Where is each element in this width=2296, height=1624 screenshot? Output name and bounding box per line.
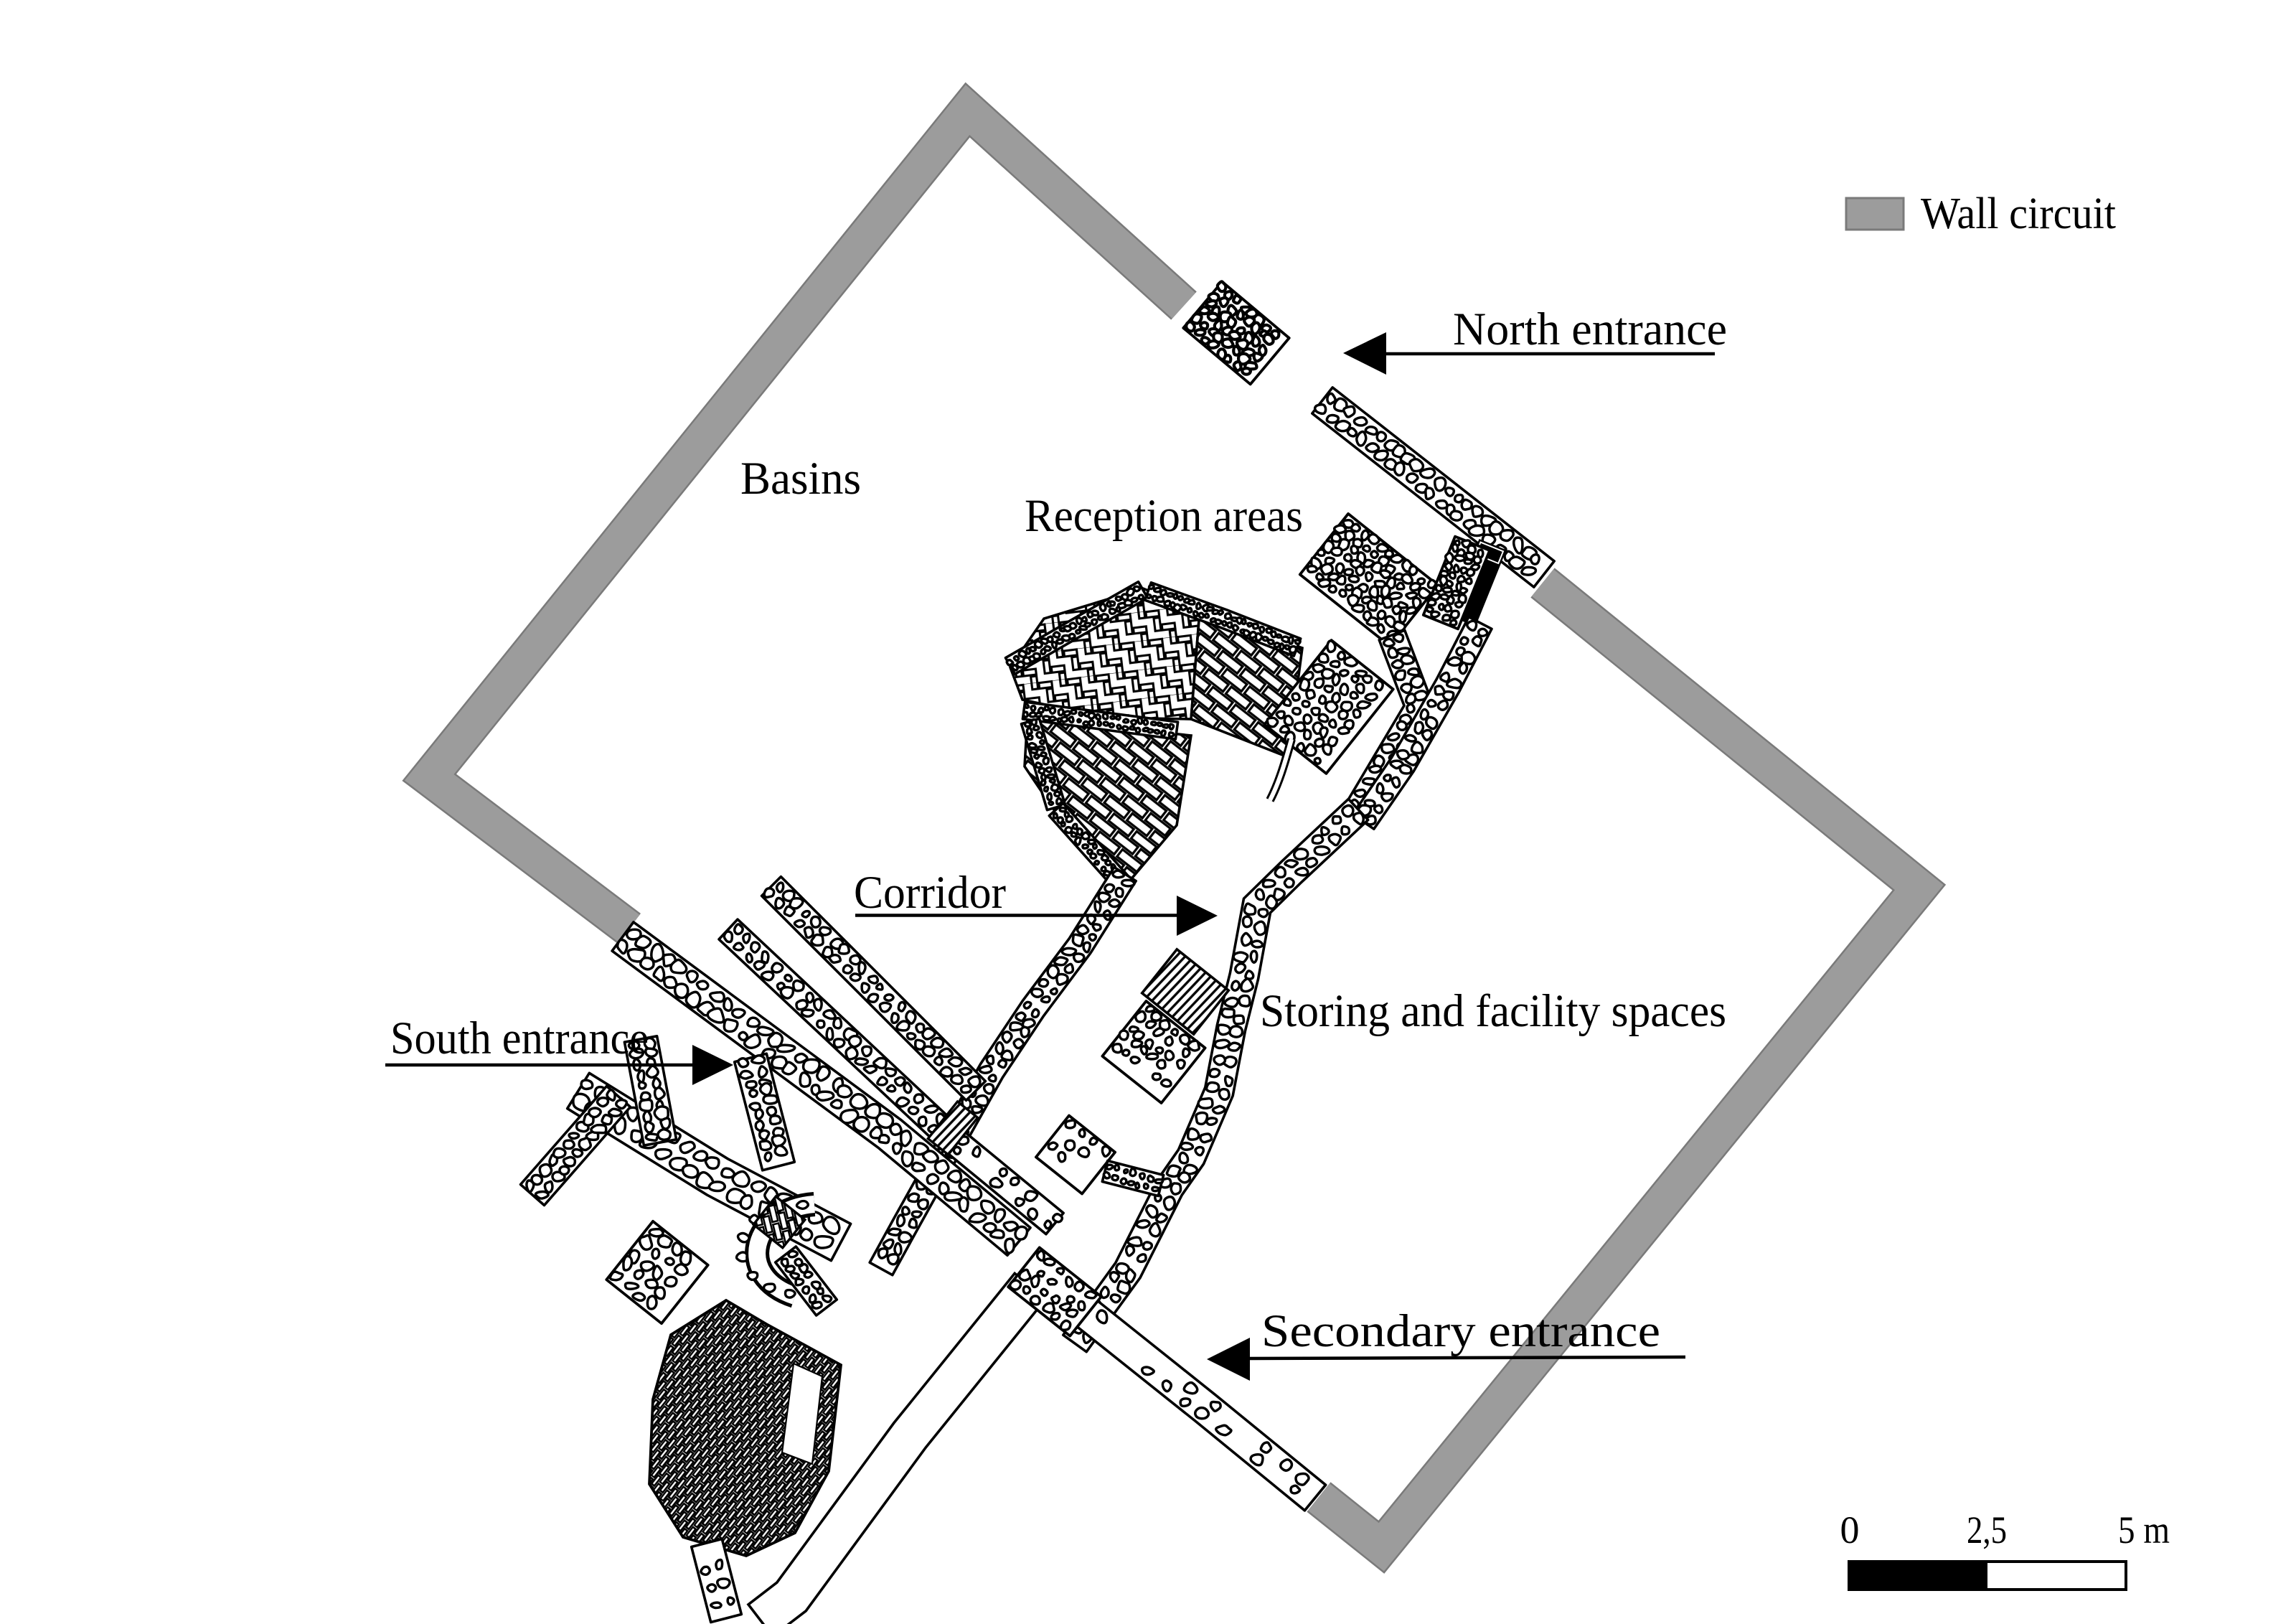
svg-text:0: 0 (1840, 1508, 1860, 1552)
svg-text:Storing and facility spaces: Storing and facility spaces (1260, 985, 1726, 1037)
svg-text:South entrance: South entrance (390, 1013, 649, 1064)
svg-text:Basins: Basins (740, 453, 861, 504)
svg-text:North entrance: North entrance (1453, 304, 1727, 355)
svg-text:Secondary entrance: Secondary entrance (1261, 1305, 1660, 1357)
svg-text:Wall circuit: Wall circuit (1921, 189, 2116, 238)
svg-text:2,5: 2,5 (1967, 1508, 2007, 1552)
svg-text:Corridor: Corridor (854, 867, 1006, 919)
svg-text:Reception areas: Reception areas (1025, 490, 1303, 542)
svg-text:5 m: 5 m (2118, 1508, 2170, 1552)
